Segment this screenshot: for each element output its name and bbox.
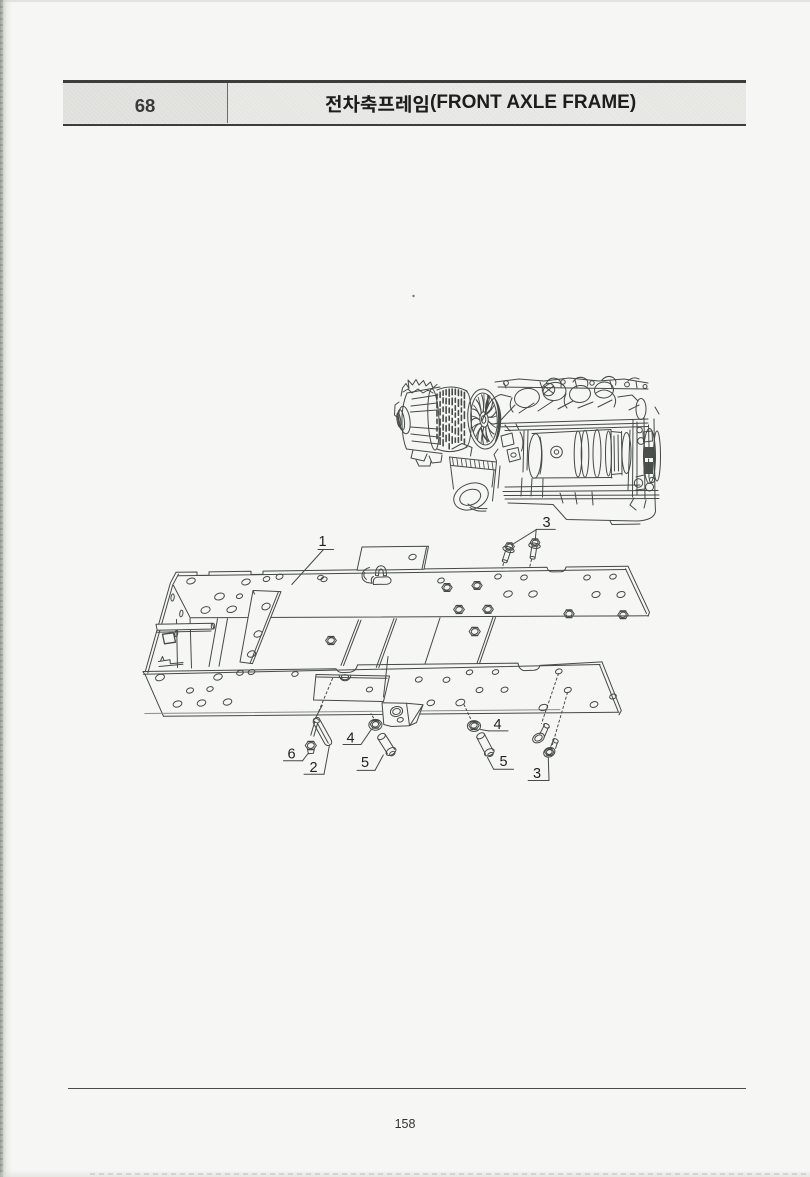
svg-text:3: 3 (543, 515, 551, 531)
svg-text:5: 5 (500, 754, 508, 770)
svg-text:6: 6 (288, 747, 296, 763)
svg-text:5: 5 (361, 755, 369, 771)
svg-text:2: 2 (310, 760, 318, 776)
svg-text:3: 3 (533, 766, 541, 782)
svg-text:1: 1 (319, 534, 327, 550)
